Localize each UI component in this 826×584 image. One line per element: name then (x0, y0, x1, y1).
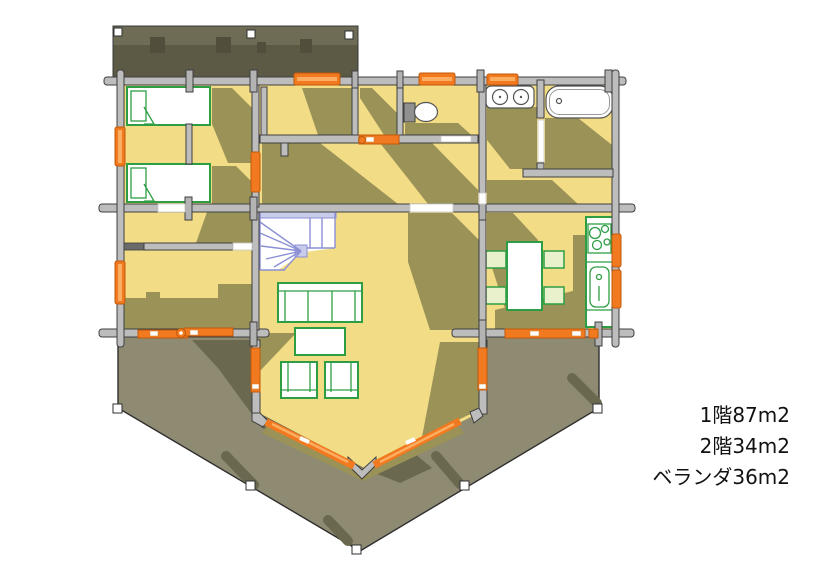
double-sink-vanity-icon (486, 86, 534, 108)
coffee-table-icon (295, 328, 345, 355)
washroom-west-wall (479, 85, 486, 207)
closet-wall (352, 85, 358, 143)
floor-plan-drawing (0, 0, 826, 584)
kitchen-counter-icon (586, 217, 613, 327)
bathtub-icon (546, 86, 613, 118)
deck-post (345, 31, 353, 39)
sliding-door (138, 328, 233, 338)
label-veranda-area: ベランダ36m2 (652, 462, 790, 493)
window (612, 270, 621, 308)
area-labels: 1階87m2 2階34m2 ベランダ36m2 (652, 400, 790, 493)
bath-south-wall (523, 169, 613, 177)
dining-west-wall (479, 212, 486, 330)
deck-post (114, 28, 122, 36)
interior-window (251, 152, 260, 192)
bath-divider-wall (537, 80, 544, 118)
bottom-windows (505, 329, 598, 338)
tatami-room-wall (144, 243, 233, 250)
floor-plan-image: 1階87m2 2階34m2 ベランダ36m2 (0, 0, 826, 584)
toilet-icon (404, 103, 438, 123)
exterior-wall-top (104, 77, 626, 85)
wc-wall (397, 85, 403, 143)
bed-icon (127, 87, 210, 125)
armchair-icon (281, 362, 317, 398)
wall-stub (281, 143, 288, 156)
label-floor2-area: 2階34m2 (652, 431, 790, 462)
door-leaf (124, 243, 144, 250)
label-floor1-area: 1階87m2 (652, 400, 790, 431)
sofa-icon (278, 283, 362, 322)
exterior-wall-left (117, 70, 124, 347)
deck-post (247, 30, 255, 38)
window (612, 234, 621, 267)
upper-deck (113, 26, 358, 78)
closet-door (359, 135, 400, 144)
armchair-icon (325, 362, 358, 398)
tatami-room-east-wall (252, 212, 259, 330)
bed-icon (127, 164, 210, 202)
bedroom-divider (186, 124, 192, 164)
